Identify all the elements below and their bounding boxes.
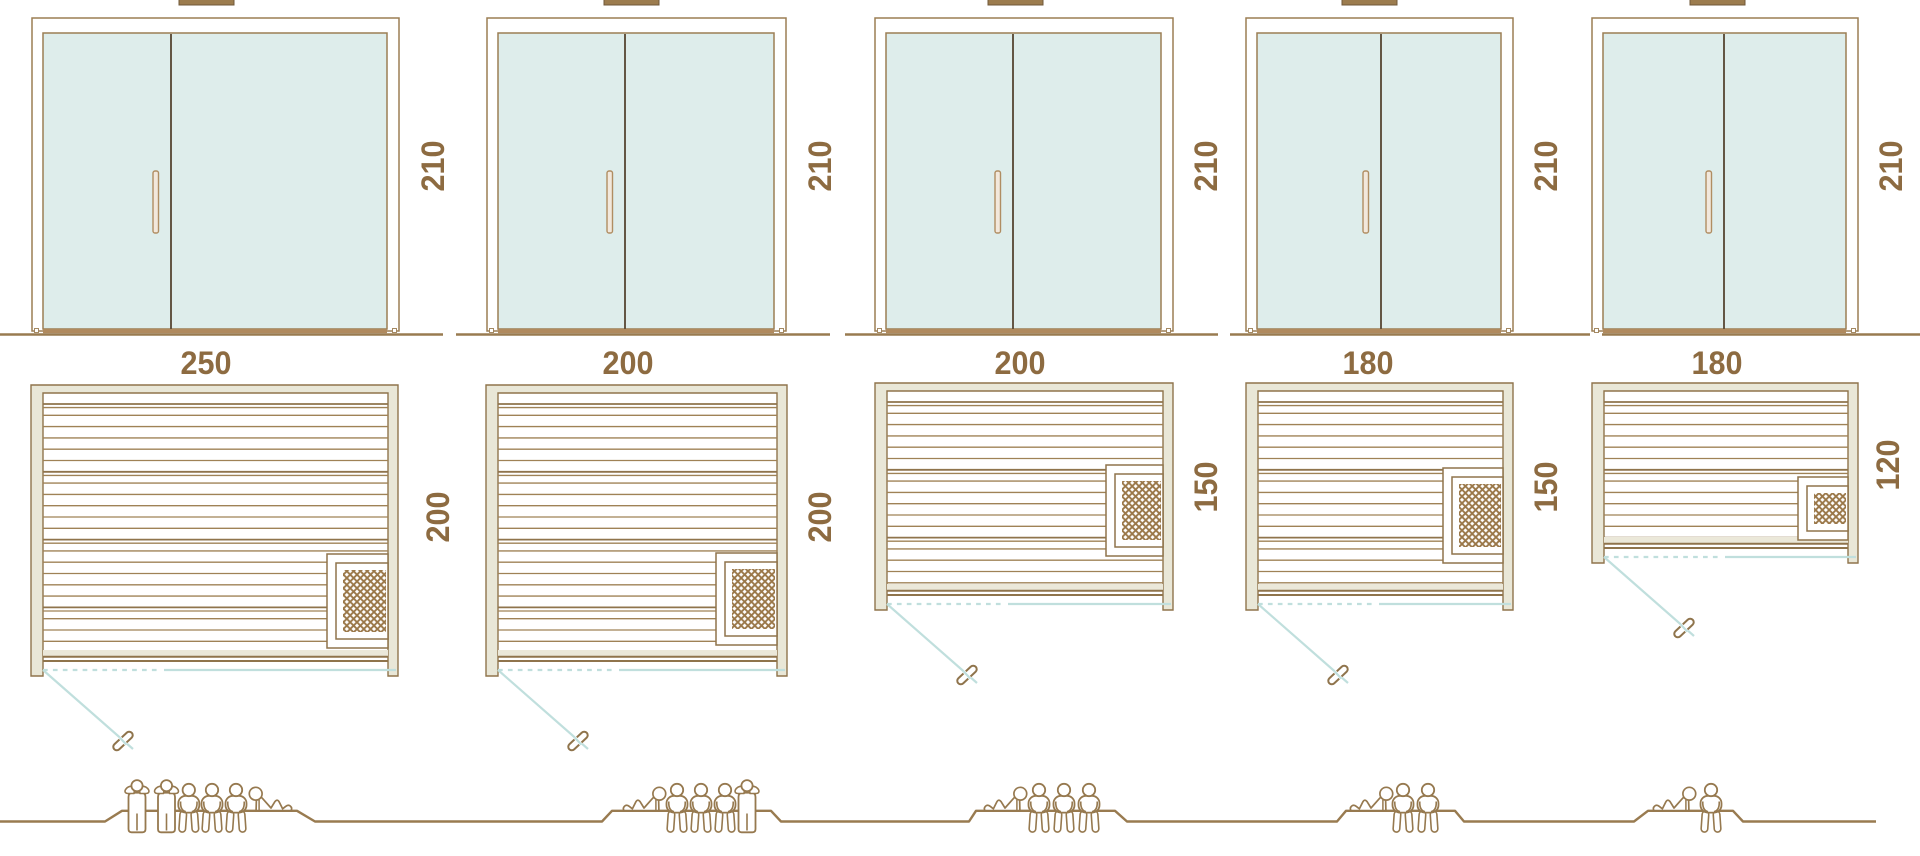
svg-text:180: 180: [1343, 345, 1394, 381]
svg-text:120: 120: [1870, 440, 1906, 491]
svg-text:180: 180: [1692, 345, 1743, 381]
svg-text:200: 200: [420, 492, 456, 543]
svg-text:150: 150: [1188, 462, 1224, 513]
svg-text:200: 200: [802, 492, 838, 543]
svg-text:210: 210: [1873, 141, 1909, 192]
svg-text:210: 210: [415, 141, 451, 192]
svg-text:210: 210: [1188, 141, 1224, 192]
svg-text:210: 210: [1528, 141, 1564, 192]
svg-text:200: 200: [603, 345, 654, 381]
svg-text:150: 150: [1528, 462, 1564, 513]
svg-text:250: 250: [181, 345, 232, 381]
svg-text:200: 200: [995, 345, 1046, 381]
svg-text:210: 210: [802, 141, 838, 192]
